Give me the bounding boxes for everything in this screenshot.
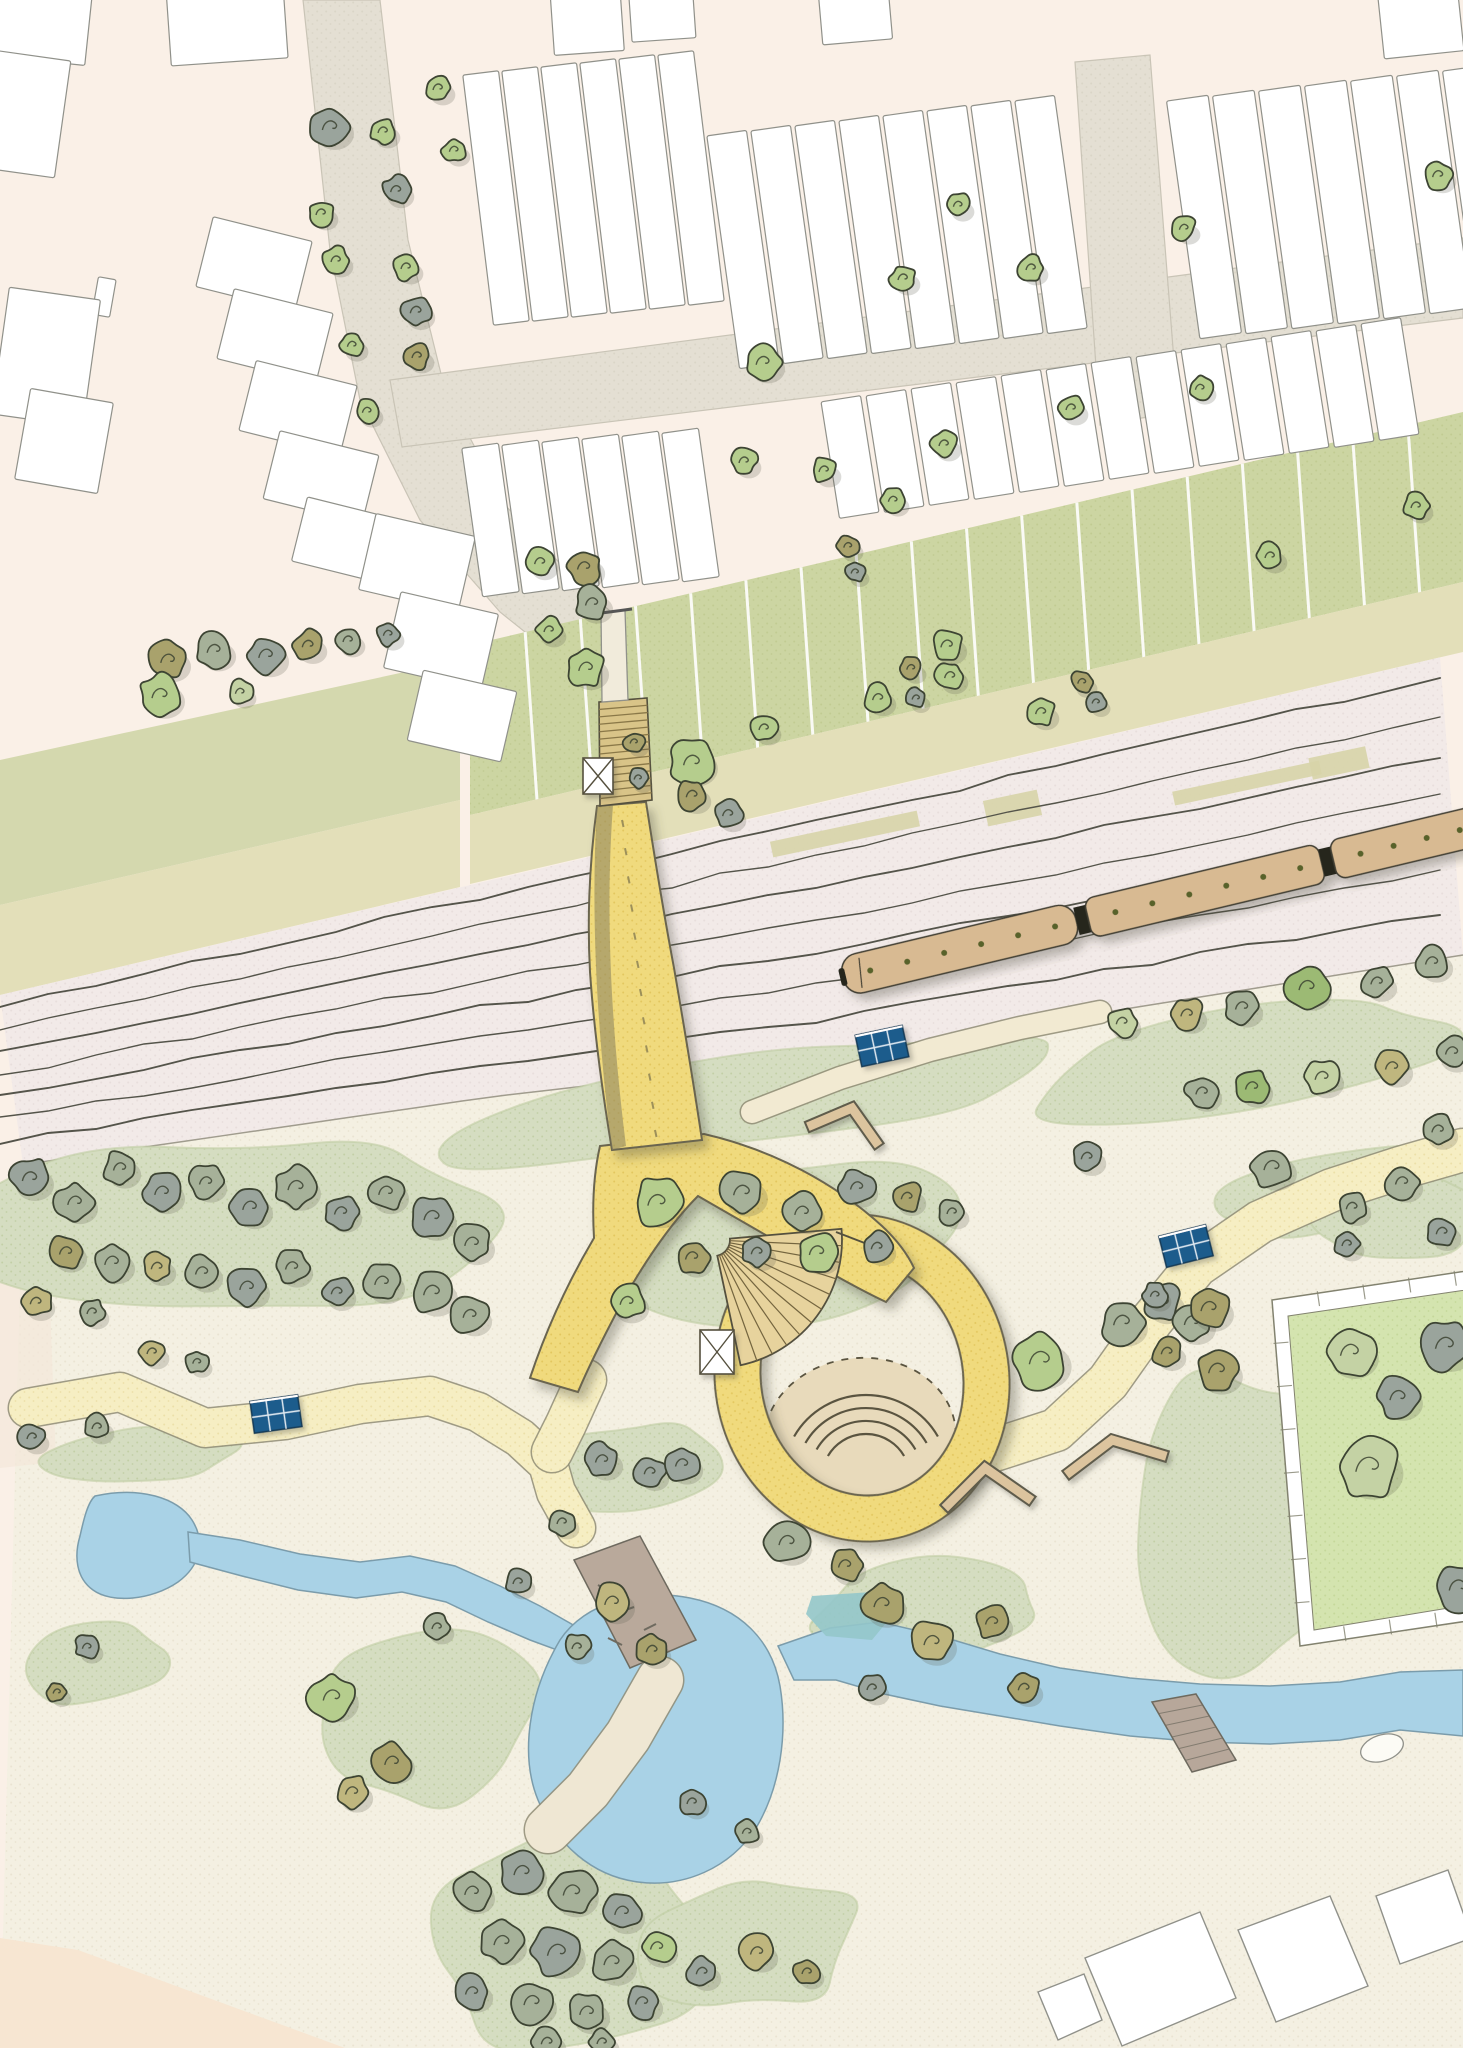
support-brace	[583, 758, 613, 794]
building	[15, 388, 114, 493]
site-plan-svg	[0, 0, 1463, 2048]
building	[1376, 0, 1463, 59]
building	[817, 0, 892, 45]
site-plan	[0, 0, 1463, 2048]
building	[165, 0, 288, 66]
tree	[638, 1179, 685, 1229]
support-brace	[700, 1330, 734, 1374]
building	[628, 0, 696, 42]
solar-panel	[250, 1395, 302, 1433]
site-plan-map	[0, 0, 1463, 2048]
bridge-landing	[601, 610, 628, 702]
building	[550, 0, 625, 55]
